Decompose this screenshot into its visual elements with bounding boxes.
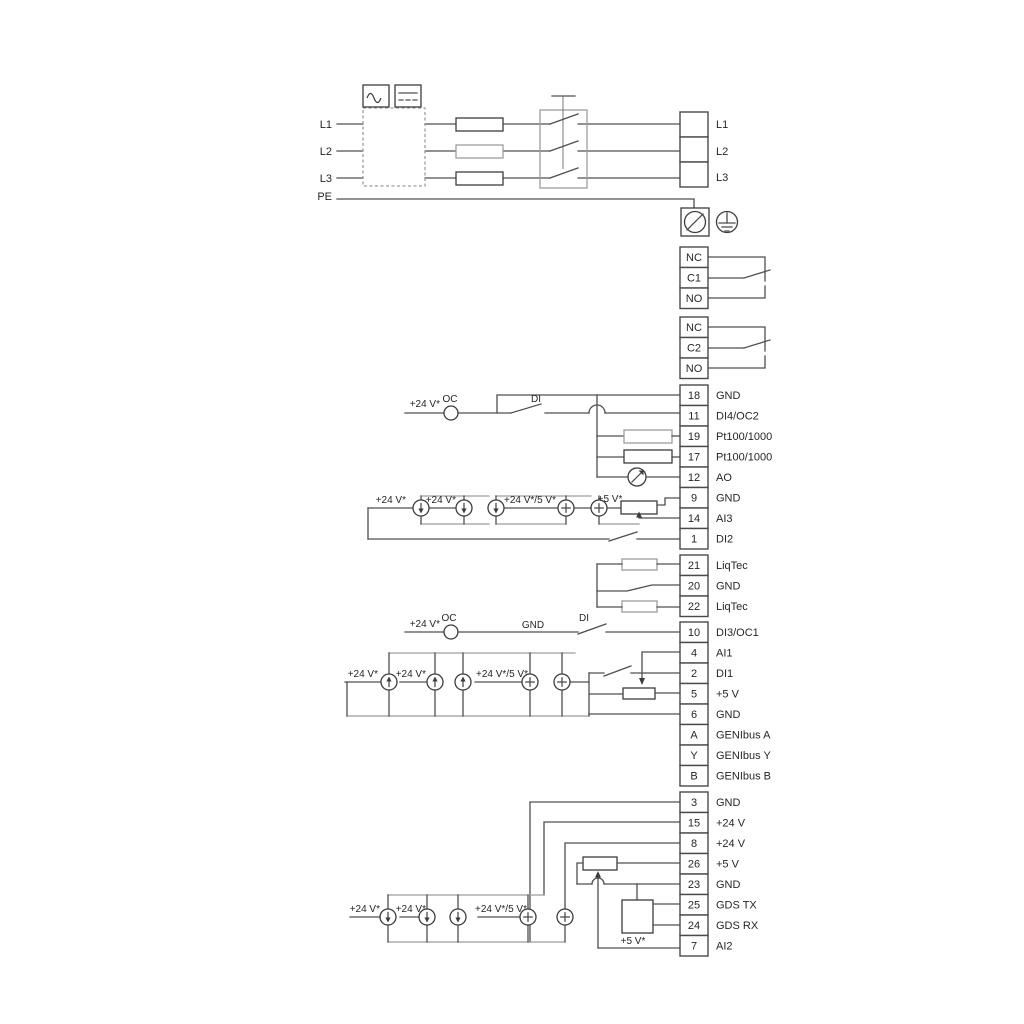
current-sink-icon bbox=[456, 500, 472, 516]
wiring-diagram-page: 18GND11DI4/OC219Pt100/100017Pt100/100012… bbox=[0, 0, 1024, 1024]
mains-terminal-cell bbox=[680, 112, 708, 137]
terminal-label: AI3 bbox=[716, 513, 733, 525]
relay-contact-1 bbox=[708, 257, 770, 298]
label-plus5-gds: +5 V* bbox=[621, 936, 646, 947]
mains-terminal-label: L2 bbox=[716, 146, 728, 158]
wiring-diagram: 18GND11DI4/OC219Pt100/100017Pt100/100012… bbox=[0, 0, 1024, 1024]
terminal-number: 4 bbox=[691, 648, 697, 660]
terminal-label: DI3/OC1 bbox=[716, 627, 759, 639]
relay-contact-2 bbox=[708, 327, 770, 368]
terminal-label: GND bbox=[716, 879, 741, 891]
di1-switch-icon bbox=[604, 666, 631, 676]
terminal-number: 25 bbox=[688, 900, 700, 912]
wiper-arrow-icon bbox=[639, 678, 645, 685]
relay-terminal-number: C2 bbox=[687, 343, 701, 355]
potentiometer-icon bbox=[583, 857, 617, 870]
label-plus24or5-ai1: +24 V*/5 V* bbox=[476, 669, 528, 680]
label-plus24-ai3-2: +24 V* bbox=[426, 495, 456, 506]
terminal-label: GND bbox=[716, 797, 741, 809]
label-plus24or5-ai2: +24 V*/5 V* bbox=[475, 904, 527, 915]
fuse-l1 bbox=[456, 118, 503, 131]
terminal-group-io-bottom: 3GND15+24 V8+24 V26+5 V23GND25GDS TX24GD… bbox=[680, 792, 759, 956]
pt100-sensor-icon bbox=[624, 430, 672, 443]
pt100-sensor-icon bbox=[624, 450, 672, 463]
terminal-number: 20 bbox=[688, 581, 700, 593]
terminal-label: AI2 bbox=[716, 941, 733, 953]
terminal-label: GENIbus Y bbox=[716, 750, 771, 762]
terminal-number: 17 bbox=[688, 452, 700, 464]
liqtec-circuit bbox=[597, 559, 680, 612]
terminal-number: 3 bbox=[691, 797, 697, 809]
relay-terminal-number: NC bbox=[686, 322, 702, 334]
fuse-l3 bbox=[456, 172, 503, 185]
terminal-number: A bbox=[690, 730, 698, 742]
terminal-group-io-mid: 10DI3/OC14AI12DI15+5 V6GNDAGENIbus AYGEN… bbox=[680, 622, 771, 786]
open-collector-icon bbox=[444, 406, 458, 420]
relay-terminal-number: NO bbox=[686, 293, 703, 305]
power-labels: L1L2L3PE bbox=[317, 119, 332, 203]
mains-terminal-label: L1 bbox=[716, 119, 728, 131]
liqtec-sensor-icon bbox=[622, 559, 657, 570]
terminal-number: 24 bbox=[688, 920, 700, 932]
terminal-label: AO bbox=[716, 472, 732, 484]
terminal-number: 23 bbox=[688, 879, 700, 891]
label-plus5-ai3: +5 V* bbox=[598, 494, 623, 505]
open-collector-icon bbox=[444, 625, 458, 639]
terminal-label: Pt100/1000 bbox=[716, 452, 772, 464]
relay-terminal-number: NC bbox=[686, 252, 702, 264]
terminal-group-io-top: 18GND11DI4/OC219Pt100/100017Pt100/100012… bbox=[680, 385, 772, 549]
terminal-label: DI1 bbox=[716, 668, 733, 680]
terminal-number: 18 bbox=[688, 390, 700, 402]
terminal-number: 7 bbox=[691, 941, 697, 953]
current-source-icon bbox=[557, 909, 573, 925]
terminal-number: Y bbox=[690, 750, 698, 762]
terminal-number: 9 bbox=[691, 493, 697, 505]
terminal-number: 26 bbox=[688, 859, 700, 871]
relay-block-2: NCC2NO bbox=[680, 317, 708, 379]
label-gnd-di3: GND bbox=[522, 620, 544, 631]
terminal-label: GENIbus A bbox=[716, 730, 771, 742]
terminal-number: 15 bbox=[688, 818, 700, 830]
di4-circuit bbox=[405, 395, 680, 486]
current-source-icon bbox=[558, 500, 574, 516]
di-switch-icon bbox=[578, 624, 606, 634]
earth-symbol-icon bbox=[717, 212, 738, 233]
fuses bbox=[456, 118, 503, 185]
dc-symbol-icon bbox=[395, 85, 421, 107]
terminal-label: Pt100/1000 bbox=[716, 431, 772, 443]
label-di-di4: DI bbox=[531, 394, 541, 405]
current-sink-icon bbox=[450, 909, 466, 925]
terminal-label: GND bbox=[716, 709, 741, 721]
terminal-label: +5 V bbox=[716, 689, 740, 701]
terminal-number: 6 bbox=[691, 709, 697, 721]
label-plus24-ai1-2: +24 V* bbox=[396, 669, 426, 680]
current-source-icon bbox=[427, 674, 443, 690]
liqtec-sensor-icon bbox=[622, 601, 657, 612]
terminal-label: DI4/OC2 bbox=[716, 411, 759, 423]
mains-terminal-cell bbox=[680, 137, 708, 162]
potentiometer-icon bbox=[623, 688, 655, 699]
label-oc-di3: OC bbox=[442, 613, 457, 624]
terminal-number: 2 bbox=[691, 668, 697, 680]
terminal-number: 10 bbox=[688, 627, 700, 639]
label-di-di3: DI bbox=[579, 613, 589, 624]
relay-terminal-number: C1 bbox=[687, 273, 701, 285]
current-source-icon bbox=[381, 674, 397, 690]
terminal-label: GND bbox=[716, 493, 741, 505]
mains-terminal-cell bbox=[680, 162, 708, 187]
mains-output-block: L1L2L3 bbox=[680, 112, 728, 187]
ai2-circuit bbox=[350, 802, 680, 948]
gds-sensor-icon bbox=[622, 900, 653, 933]
terminal-number: 14 bbox=[688, 513, 700, 525]
terminal-label: GND bbox=[716, 390, 741, 402]
terminal-label: LiqTec bbox=[716, 560, 748, 572]
terminal-number: 22 bbox=[688, 601, 700, 613]
terminal-label: +24 V bbox=[716, 818, 746, 830]
terminal-number: 1 bbox=[691, 534, 697, 546]
terminal-label: LiqTec bbox=[716, 601, 748, 613]
terminal-number: 8 bbox=[691, 838, 697, 850]
terminal-label: GENIbus B bbox=[716, 771, 771, 783]
label-plus24-ai3-1: +24 V* bbox=[376, 495, 406, 506]
current-sink-icon bbox=[488, 500, 504, 516]
terminal-label: +5 V bbox=[716, 859, 740, 871]
ai1-circuit bbox=[345, 652, 680, 716]
terminal-label: GND bbox=[716, 581, 741, 593]
supply-label-L3: L3 bbox=[320, 173, 332, 185]
terminal-number: 12 bbox=[688, 472, 700, 484]
terminal-number: 5 bbox=[691, 689, 697, 701]
wiper-arrow-icon bbox=[595, 871, 601, 878]
di2-switch-icon bbox=[609, 532, 637, 541]
supply-label-L1: L1 bbox=[320, 119, 332, 131]
supply-label-L2: L2 bbox=[320, 146, 332, 158]
terminal-number: 21 bbox=[688, 560, 700, 572]
terminal-label: DI2 bbox=[716, 534, 733, 546]
contactor bbox=[540, 96, 587, 188]
pe-screw-terminal bbox=[681, 208, 709, 236]
label-plus24-di3: +24 V* bbox=[410, 619, 440, 630]
label-plus24-ai2-1: +24 V* bbox=[350, 904, 380, 915]
analog-meter-icon bbox=[628, 468, 646, 486]
fuse-l2 bbox=[456, 145, 503, 158]
label-plus24-ai1-1: +24 V* bbox=[348, 669, 378, 680]
terminal-label: +24 V bbox=[716, 838, 746, 850]
terminal-number: 19 bbox=[688, 431, 700, 443]
label-oc-di4: OC bbox=[443, 394, 458, 405]
current-source-icon bbox=[554, 674, 570, 690]
terminal-label: GDS RX bbox=[716, 920, 759, 932]
ac-symbol-icon bbox=[363, 85, 389, 107]
label-plus24-di4: +24 V* bbox=[410, 399, 440, 410]
terminal-number: B bbox=[690, 771, 697, 783]
terminal-number: 11 bbox=[688, 411, 699, 423]
current-source-icon bbox=[455, 674, 471, 690]
terminal-label: GDS TX bbox=[716, 900, 757, 912]
supply-label-PE: PE bbox=[317, 191, 332, 203]
relay-block-1: NCC1NO bbox=[680, 247, 708, 309]
label-plus24or5-ai3: +24 V*/5 V* bbox=[504, 495, 556, 506]
power-lines bbox=[337, 124, 694, 208]
terminal-group-liqtec: 21LiqTec20GND22LiqTec bbox=[680, 555, 748, 617]
current-sink-icon bbox=[380, 909, 396, 925]
mains-terminal-label: L3 bbox=[716, 172, 728, 184]
emc-filter bbox=[363, 85, 425, 186]
terminal-blocks: 18GND11DI4/OC219Pt100/100017Pt100/100012… bbox=[680, 112, 772, 956]
di-switch-icon bbox=[511, 404, 541, 413]
label-plus24-ai2-2: +24 V* bbox=[396, 904, 426, 915]
relay-terminal-number: NO bbox=[686, 363, 703, 375]
terminal-label: AI1 bbox=[716, 648, 733, 660]
